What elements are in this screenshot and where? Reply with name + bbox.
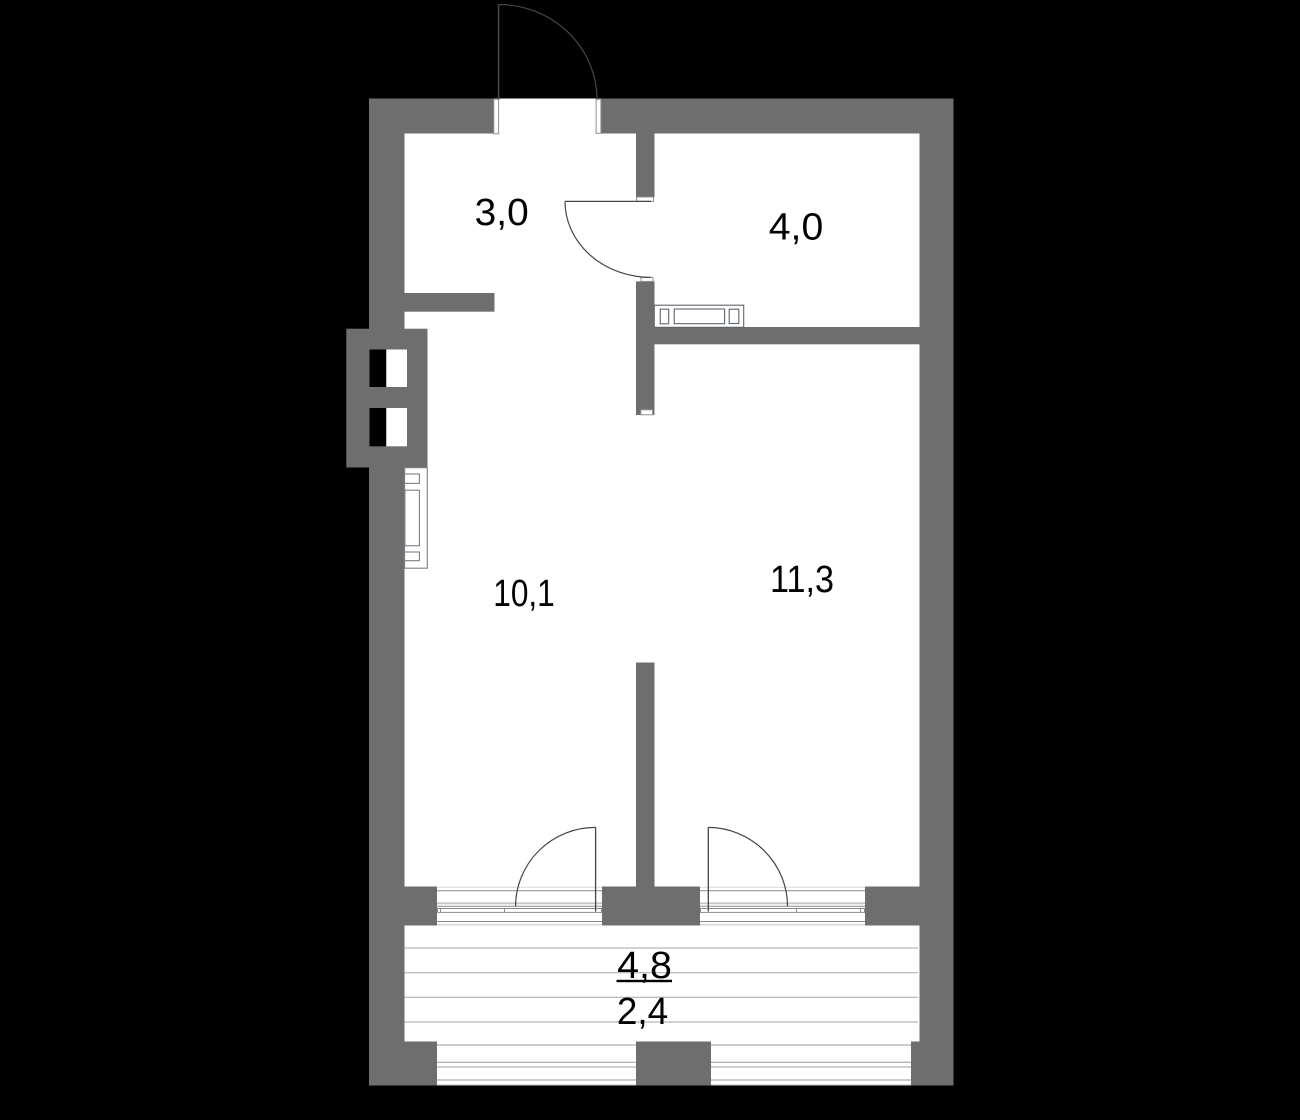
svg-text:11,3: 11,3	[770, 559, 834, 601]
svg-text:2,4: 2,4	[617, 991, 668, 1033]
svg-text:10,1: 10,1	[493, 573, 555, 615]
svg-text:4,0: 4,0	[769, 207, 824, 249]
svg-text:3,0: 3,0	[475, 192, 529, 234]
